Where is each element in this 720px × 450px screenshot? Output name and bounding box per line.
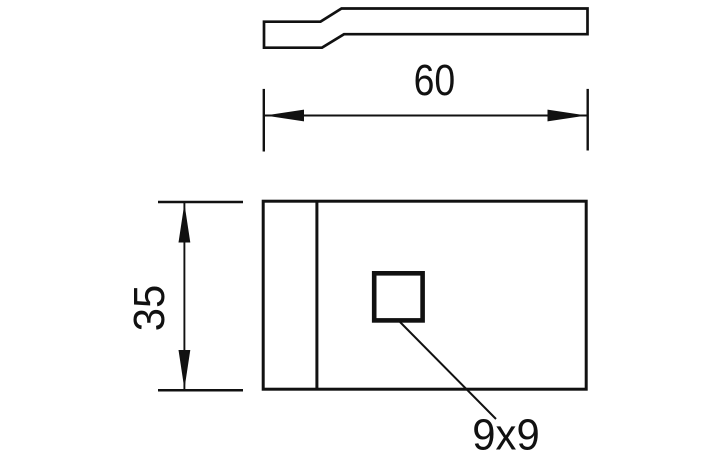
svg-text:35: 35	[125, 285, 174, 331]
svg-text:60: 60	[414, 55, 456, 105]
svg-text:9x9: 9x9	[472, 411, 539, 450]
